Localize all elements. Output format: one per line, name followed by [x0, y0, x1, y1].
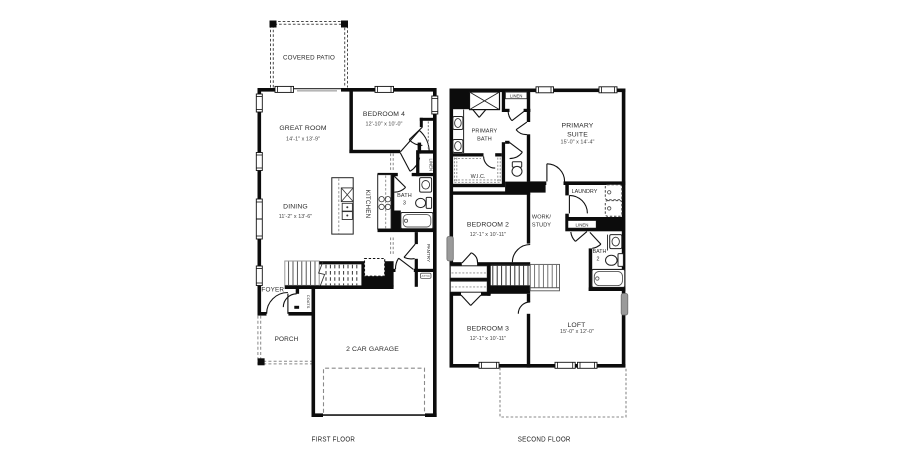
svg-text:W.I.C.: W.I.C. [471, 174, 486, 180]
svg-text:2: 2 [597, 257, 600, 263]
svg-text:LINEN: LINEN [428, 158, 433, 171]
svg-text:BEDROOM 3: BEDROOM 3 [467, 326, 509, 333]
svg-text:COATS: COATS [306, 295, 311, 309]
svg-text:11'-2" x 13'-6": 11'-2" x 13'-6" [279, 214, 313, 220]
svg-text:PORCH: PORCH [275, 336, 299, 343]
svg-text:SECOND FLOOR: SECOND FLOOR [518, 434, 571, 443]
svg-text:GREAT ROOM: GREAT ROOM [279, 125, 327, 132]
svg-text:ATTIC: ATTIC [421, 274, 430, 278]
svg-text:2 CAR GARAGE: 2 CAR GARAGE [346, 346, 399, 353]
svg-text:PRIMARY: PRIMARY [562, 123, 594, 130]
svg-text:STUDY: STUDY [532, 223, 551, 229]
svg-text:LAUNDRY: LAUNDRY [572, 189, 598, 195]
svg-text:LOFT: LOFT [568, 322, 586, 329]
svg-text:COVERED PATIO: COVERED PATIO [283, 55, 335, 62]
svg-text:PRIMARY: PRIMARY [472, 129, 498, 135]
svg-text:BATH: BATH [397, 193, 412, 199]
svg-text:12'-1" x 10'-11": 12'-1" x 10'-11" [470, 232, 507, 238]
svg-text:3: 3 [403, 201, 406, 207]
svg-text:LINEN: LINEN [576, 222, 589, 227]
svg-text:12'-10" x 10'-0": 12'-10" x 10'-0" [366, 122, 403, 128]
svg-text:SUITE: SUITE [567, 131, 588, 138]
svg-text:KITCHEN: KITCHEN [364, 190, 371, 219]
svg-text:BATH: BATH [593, 249, 607, 255]
svg-text:BEDROOM 2: BEDROOM 2 [467, 222, 509, 229]
svg-text:12'-1" x 10'-11": 12'-1" x 10'-11" [470, 336, 507, 342]
svg-text:FIRST FLOOR: FIRST FLOOR [312, 434, 356, 443]
svg-text:LINEN: LINEN [510, 93, 522, 98]
svg-text:BEDROOM 4: BEDROOM 4 [363, 111, 405, 118]
svg-text:14'-1" x 13'-9": 14'-1" x 13'-9" [286, 137, 320, 143]
svg-text:15'-0" x 12'-0": 15'-0" x 12'-0" [560, 329, 594, 335]
svg-text:FOYER: FOYER [261, 287, 284, 294]
svg-text:PANTRY: PANTRY [426, 244, 431, 262]
svg-text:WORK/: WORK/ [532, 214, 552, 220]
svg-text:DINING: DINING [283, 204, 308, 211]
svg-text:15'-0" x 14'-4": 15'-0" x 14'-4" [561, 140, 595, 146]
svg-text:BATH: BATH [477, 137, 492, 143]
